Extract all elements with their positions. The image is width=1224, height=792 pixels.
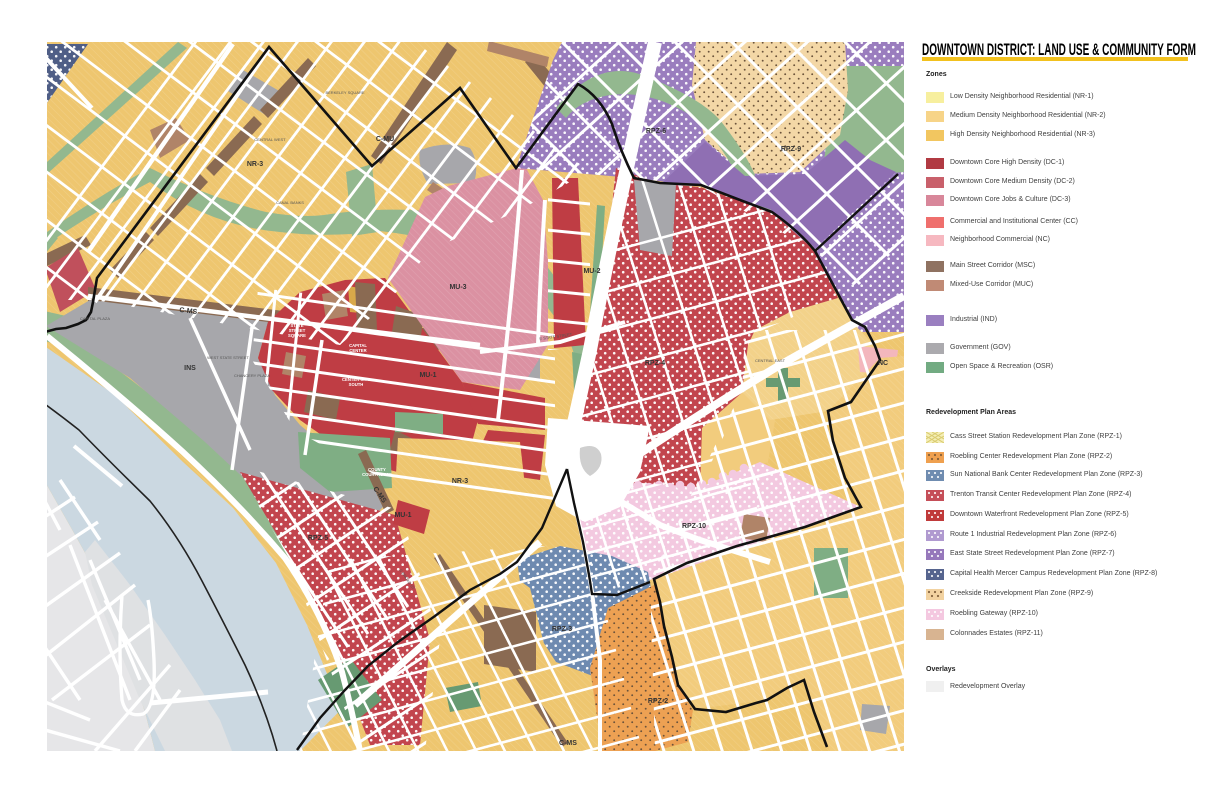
svg-text:NC: NC <box>878 360 888 367</box>
svg-text:CAPITAL PLAZA: CAPITAL PLAZA <box>80 316 110 321</box>
svg-text:SQUARE: SQUARE <box>288 333 306 338</box>
svg-text:CENTER: CENTER <box>349 348 366 353</box>
svg-text:C-MU: C-MU <box>376 136 394 143</box>
svg-text:CENTRAL EAST: CENTRAL EAST <box>755 358 786 363</box>
svg-text:WEST STATE STREET: WEST STATE STREET <box>207 355 249 360</box>
svg-text:CANAL BANKS: CANAL BANKS <box>276 200 304 205</box>
svg-text:NR-3: NR-3 <box>247 161 263 168</box>
svg-text:RPZ-4: RPZ-4 <box>645 360 665 367</box>
svg-text:RPZ-6: RPZ-6 <box>646 128 666 135</box>
svg-text:MU-2: MU-2 <box>583 268 600 275</box>
svg-text:RPZ-10: RPZ-10 <box>682 523 706 530</box>
svg-text:INS: INS <box>184 365 196 372</box>
svg-text:CHANCERY PLAZA: CHANCERY PLAZA <box>234 373 270 378</box>
svg-text:SOUTH: SOUTH <box>349 382 364 387</box>
svg-text:C-MS: C-MS <box>559 740 577 747</box>
svg-text:CENTRAL WEST: CENTRAL WEST <box>254 137 286 142</box>
svg-text:RPZ-9: RPZ-9 <box>781 146 801 153</box>
svg-text:RPZ-2: RPZ-2 <box>648 698 668 705</box>
svg-text:RPZ-3: RPZ-3 <box>552 626 572 633</box>
svg-text:NR-3: NR-3 <box>452 478 468 485</box>
svg-text:MU-1: MU-1 <box>394 512 411 519</box>
svg-text:RPZ-5: RPZ-5 <box>308 535 328 542</box>
svg-text:MU-1: MU-1 <box>419 372 436 379</box>
svg-text:MU-3: MU-3 <box>449 284 466 291</box>
svg-text:COURTHOUSE: COURTHOUSE <box>362 472 392 477</box>
svg-text:BERKELEY SQUARE: BERKELEY SQUARE <box>325 90 364 95</box>
